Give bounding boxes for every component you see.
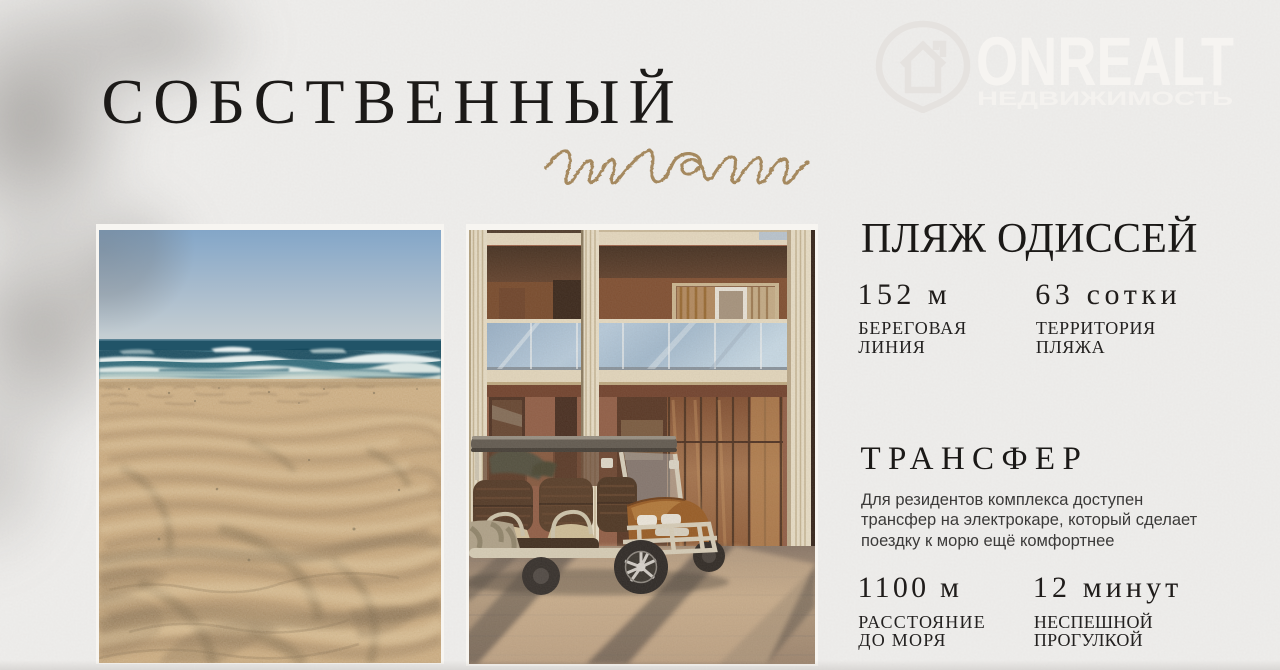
svg-text:НЕДВИЖИМОСТЬ: НЕДВИЖИМОСТЬ bbox=[977, 89, 1233, 110]
